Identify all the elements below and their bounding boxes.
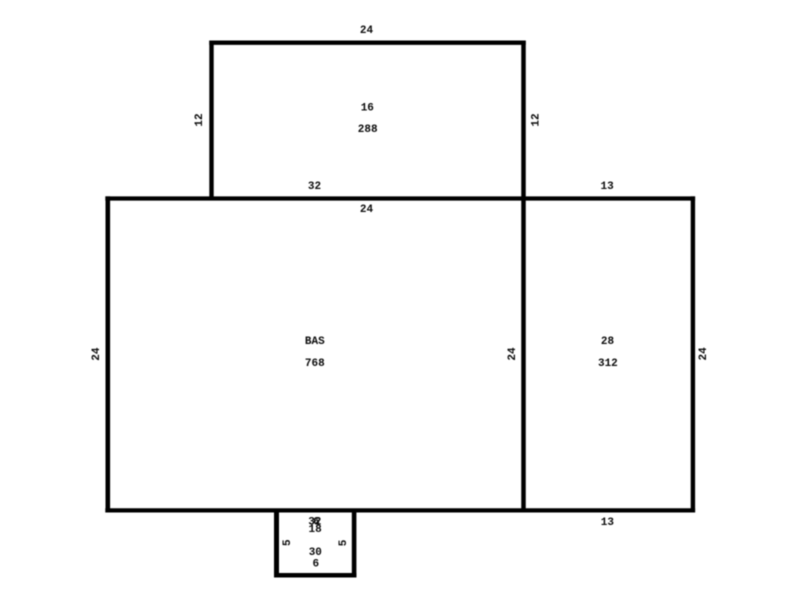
svg-text:13: 13 bbox=[600, 181, 614, 193]
svg-text:24: 24 bbox=[360, 204, 374, 216]
svg-text:24: 24 bbox=[507, 347, 519, 361]
svg-text:12: 12 bbox=[530, 113, 542, 126]
svg-text:30: 30 bbox=[309, 547, 322, 559]
svg-text:312: 312 bbox=[598, 358, 618, 370]
svg-text:24: 24 bbox=[91, 347, 103, 361]
svg-text:16: 16 bbox=[361, 102, 374, 114]
svg-text:32: 32 bbox=[308, 181, 321, 193]
svg-text:BAS: BAS bbox=[305, 336, 325, 348]
svg-text:288: 288 bbox=[358, 124, 378, 136]
svg-text:24: 24 bbox=[360, 25, 374, 37]
svg-text:6: 6 bbox=[312, 558, 319, 570]
svg-text:12: 12 bbox=[194, 113, 206, 126]
svg-text:18: 18 bbox=[308, 524, 322, 536]
svg-text:5: 5 bbox=[338, 539, 350, 546]
svg-text:13: 13 bbox=[601, 517, 615, 529]
svg-text:28: 28 bbox=[601, 336, 615, 348]
svg-text:24: 24 bbox=[698, 347, 710, 361]
svg-text:768: 768 bbox=[305, 358, 325, 370]
svg-text:5: 5 bbox=[282, 539, 294, 546]
